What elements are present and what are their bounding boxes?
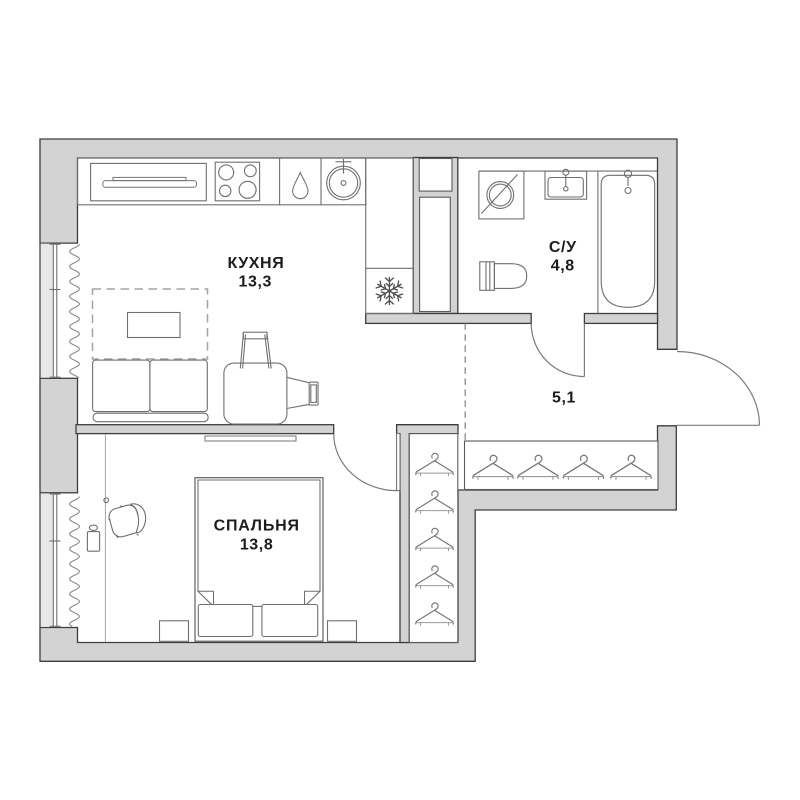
- svg-text:4,8: 4,8: [551, 258, 575, 275]
- svg-text:13,8: 13,8: [240, 536, 274, 553]
- svg-text:КУХНЯ: КУХНЯ: [227, 255, 284, 272]
- svg-text:5,1: 5,1: [552, 390, 576, 407]
- svg-text:СПАЛЬНЯ: СПАЛЬНЯ: [214, 518, 300, 535]
- svg-text:С/У: С/У: [549, 239, 577, 256]
- svg-text:13,3: 13,3: [239, 273, 273, 290]
